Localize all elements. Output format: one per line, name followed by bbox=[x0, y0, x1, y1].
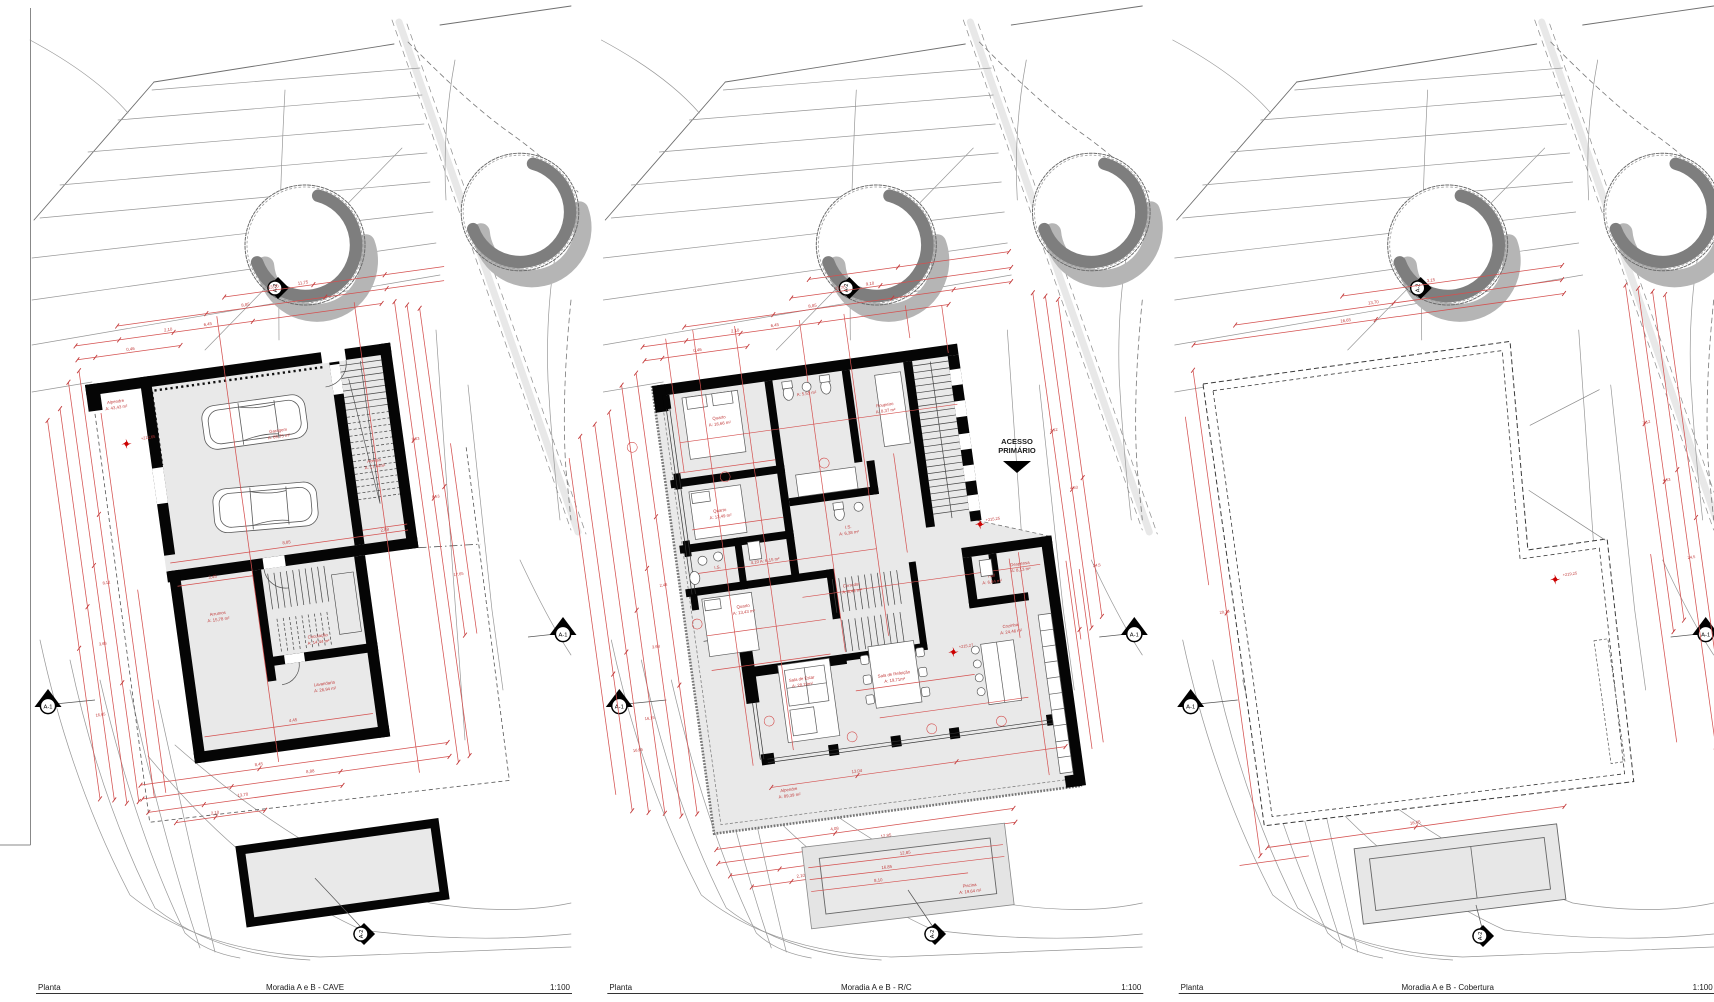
svg-text:ACESSO: ACESSO bbox=[1001, 437, 1033, 446]
svg-text:Planta: Planta bbox=[609, 983, 632, 992]
svg-text:1:100: 1:100 bbox=[550, 983, 571, 992]
svg-text:1:100: 1:100 bbox=[1693, 983, 1714, 992]
svg-text:I.S.: I.S. bbox=[714, 564, 721, 570]
svg-text:I.S.: I.S. bbox=[845, 524, 852, 530]
svg-text:Moradia A e B - R/C: Moradia A e B - R/C bbox=[841, 983, 912, 992]
svg-text:PRIMÁRIO: PRIMÁRIO bbox=[998, 446, 1036, 455]
svg-text:Planta: Planta bbox=[1181, 983, 1204, 992]
svg-text:8,10: 8,10 bbox=[874, 877, 884, 883]
svg-text:Moradia A e B - CAVE: Moradia A e B - CAVE bbox=[266, 983, 344, 992]
svg-text:Moradia A e B - Cobertura: Moradia A e B - Cobertura bbox=[1401, 983, 1494, 992]
svg-text:1:100: 1:100 bbox=[1121, 983, 1142, 992]
svg-text:Planta: Planta bbox=[38, 983, 61, 992]
